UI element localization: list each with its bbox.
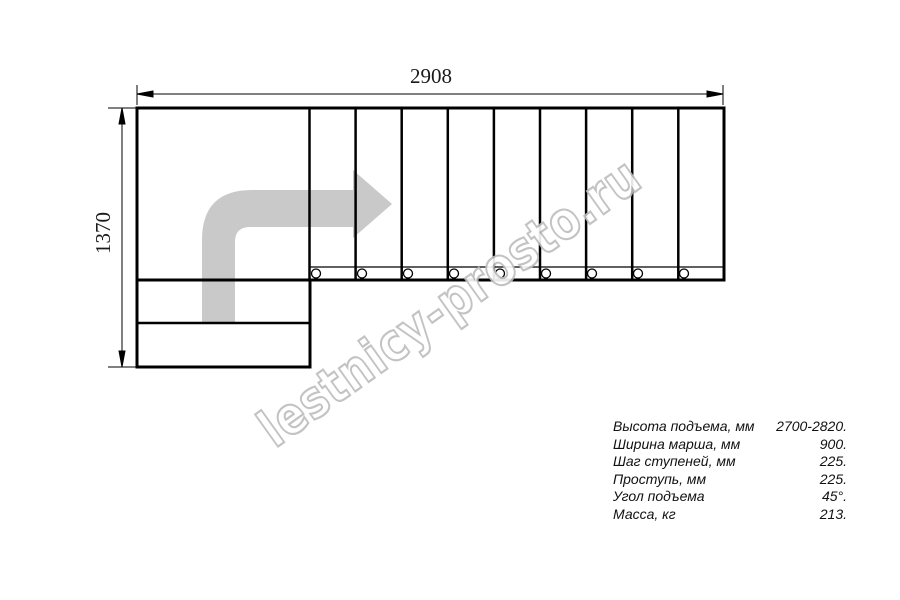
tread-marker — [404, 269, 413, 278]
dim-arrowhead-left — [137, 91, 153, 97]
spec-row: Высота подъема, мм 2700-2820. — [613, 418, 847, 436]
spec-value: 225. — [820, 453, 847, 471]
spec-row: Масса, кг 213. — [613, 506, 847, 524]
spec-value: 225. — [820, 471, 847, 489]
spec-value: 45°. — [822, 488, 847, 506]
tread-marker — [358, 269, 367, 278]
spec-row: Проступь, мм 225. — [613, 471, 847, 489]
staircase-drawing-page: lestnicy-prosto.ru 2908 1370 Высота подъ… — [0, 0, 900, 600]
tread-marker — [312, 269, 321, 278]
spec-label: Проступь, мм — [613, 471, 706, 489]
spec-label: Высота подъема, мм — [613, 418, 755, 436]
spec-label: Угол подъема — [613, 488, 705, 506]
spec-row: Ширина марша, мм 900. — [613, 436, 847, 454]
spec-row: Шаг ступеней, мм 225. — [613, 453, 847, 471]
spec-label: Масса, кг — [613, 506, 676, 524]
tread-marker — [588, 269, 597, 278]
dim-arrowhead-top — [119, 108, 125, 124]
spec-value: 900. — [820, 436, 847, 454]
dim-arrowhead-bottom — [119, 351, 125, 367]
spec-label: Шаг ступеней, мм — [613, 453, 736, 471]
width-dimension — [137, 85, 723, 105]
height-dimension-label: 1370 — [91, 188, 115, 278]
spec-value: 213. — [820, 506, 847, 524]
spec-value: 2700-2820. — [776, 418, 847, 436]
dim-arrowhead-right — [707, 91, 723, 97]
tread-marker — [680, 269, 689, 278]
width-dimension-label: 2908 — [386, 64, 476, 88]
direction-arrow-icon — [202, 170, 392, 323]
specs-table: Высота подъема, мм 2700-2820. Ширина мар… — [613, 418, 847, 524]
tread-marker — [634, 269, 643, 278]
spec-row: Угол подъема 45°. — [613, 488, 847, 506]
spec-label: Ширина марша, мм — [613, 436, 740, 454]
